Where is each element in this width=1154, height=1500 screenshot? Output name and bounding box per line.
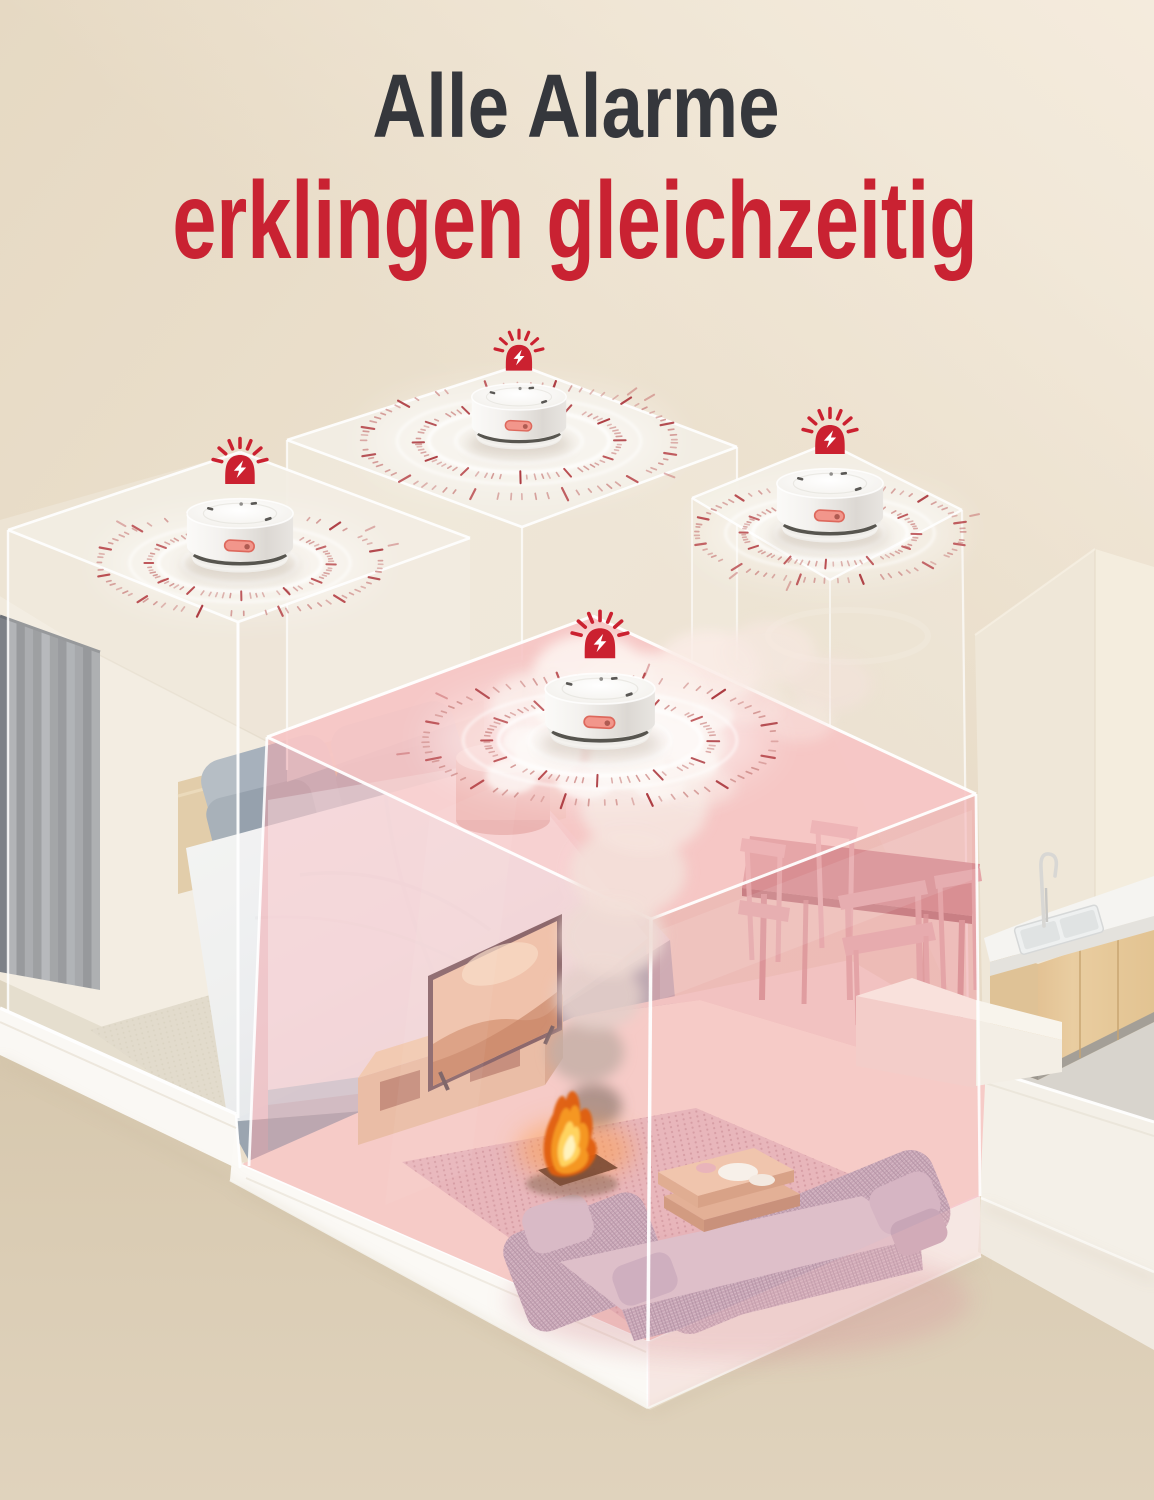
svg-text:Alle Alarme: Alle Alarme — [372, 55, 779, 156]
svg-text:erklingen gleichzeitig: erklingen gleichzeitig — [172, 159, 977, 282]
